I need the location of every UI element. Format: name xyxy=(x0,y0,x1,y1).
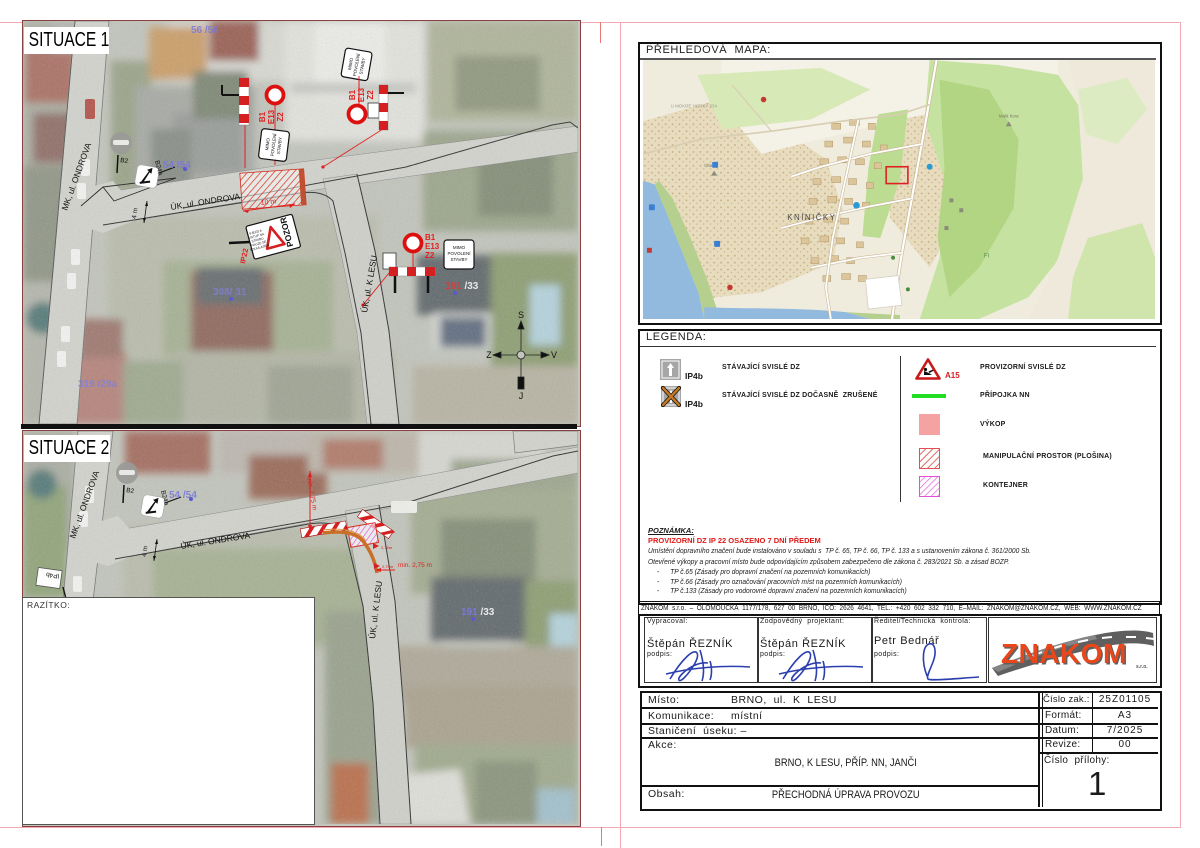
svg-text:4 m: 4 m xyxy=(141,546,149,558)
svg-text:MIMO: MIMO xyxy=(453,245,466,250)
svg-text:2,75m: 2,75m xyxy=(382,564,394,569)
svg-text:319 /29a: 319 /29a xyxy=(78,379,117,390)
svg-text:V: V xyxy=(551,350,557,360)
svg-text:B1: B1 xyxy=(258,111,267,122)
svg-text:2,75m: 2,75m xyxy=(381,545,393,550)
svg-text:min. 2,75 m: min. 2,75 m xyxy=(398,562,432,569)
svg-text:54 /54: 54 /54 xyxy=(163,160,191,171)
svg-text:Z2: Z2 xyxy=(276,112,285,122)
svg-text:ZNAKOM: ZNAKOM xyxy=(1001,638,1127,669)
svg-text:POVOLENÍ: POVOLENÍ xyxy=(447,250,471,256)
svg-text:191 /33: 191 /33 xyxy=(445,281,479,292)
svg-text:Z2: Z2 xyxy=(366,90,375,100)
svg-text:U MOKRE HORKY 234: U MOKRE HORKY 234 xyxy=(671,103,718,108)
svg-text:308/ 31: 308/ 31 xyxy=(213,287,247,298)
svg-text:Malá hora: Malá hora xyxy=(999,113,1019,118)
svg-text:56 /56: 56 /56 xyxy=(191,25,219,36)
svg-text:E13: E13 xyxy=(357,87,366,102)
svg-text:54 /54: 54 /54 xyxy=(169,490,197,501)
svg-text:FI: FI xyxy=(984,254,990,260)
svg-text:STAVBY: STAVBY xyxy=(450,257,467,262)
svg-text:E13: E13 xyxy=(267,109,276,124)
svg-text:191 /33: 191 /33 xyxy=(461,607,495,618)
svg-text:KNÍNIČKY: KNÍNIČKY xyxy=(787,213,836,222)
svg-text:B2: B2 xyxy=(120,157,129,165)
svg-text:4 m: 4 m xyxy=(131,208,139,220)
svg-text:B1: B1 xyxy=(425,233,436,242)
svg-text:Z: Z xyxy=(486,350,492,360)
svg-text:Z2: Z2 xyxy=(425,251,435,260)
svg-text:B2: B2 xyxy=(126,487,135,495)
svg-text:J: J xyxy=(519,391,524,401)
svg-text:s.r.o.: s.r.o. xyxy=(1136,664,1148,670)
svg-text:S: S xyxy=(518,310,524,320)
svg-text:B1: B1 xyxy=(348,89,357,100)
svg-text:E13: E13 xyxy=(425,242,440,251)
